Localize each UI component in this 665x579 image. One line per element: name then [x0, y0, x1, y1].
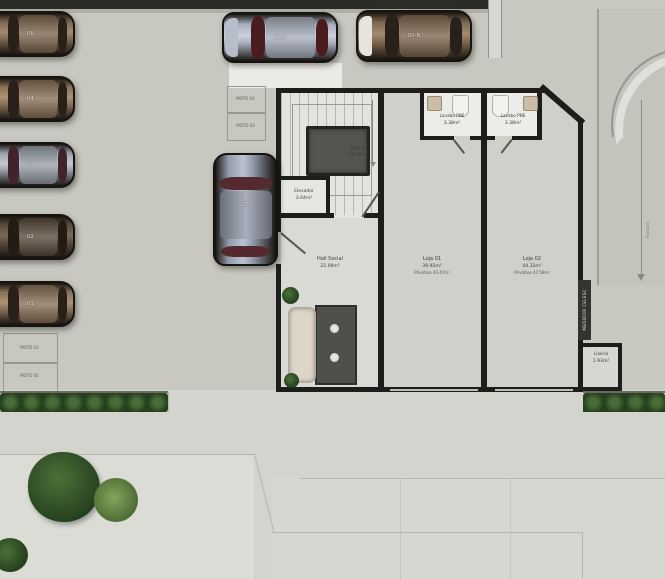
wall-stair-bottom-right — [364, 213, 378, 218]
wall-loja01-loja02 — [481, 88, 487, 392]
escada-area: 14.10m² — [348, 153, 367, 158]
car-spot-04: 04 — [0, 76, 75, 122]
lixeira-name: Lixeira — [594, 352, 608, 357]
hall-social-label: Hall Social 22.09m² — [304, 256, 356, 270]
elevador-name: Elevador — [294, 189, 314, 194]
sidewalk-joint — [168, 392, 169, 412]
car-number: 04 — [0, 96, 75, 102]
car-spot-07: 07 — [213, 153, 278, 266]
sidewalk-patch-right — [272, 478, 665, 579]
loja-02-label: Loja 02 44.32m² Privativa 47.56m² — [502, 256, 562, 277]
loja-01-area: 39.92m² — [422, 264, 441, 269]
sidewalk-joint — [510, 478, 511, 579]
wall-lavabo1-bottom — [420, 136, 454, 140]
escada-label: Escada 14.10m² — [338, 146, 378, 159]
escada-name: Escada — [350, 146, 366, 151]
wall-top — [276, 88, 548, 93]
wall-lixeira-right — [618, 343, 622, 392]
car-number: 03 — [0, 162, 75, 168]
sink-icon — [523, 96, 538, 111]
car-windshield — [219, 177, 272, 191]
loja-01-label: Loja 01 39.92m² Privativa 43.47m² — [402, 256, 462, 277]
wall-elevador-top — [276, 176, 330, 180]
elevador-area: 3.64m² — [296, 196, 313, 201]
parking-strip-05a — [229, 63, 342, 88]
wall-right — [578, 118, 583, 392]
car-number: 05-A — [222, 35, 338, 41]
moto-04-text: MOTO 04 — [236, 97, 255, 101]
sidewalk-joint — [400, 478, 401, 579]
loja-02-privativa: Privativa 47.56m² — [514, 270, 550, 275]
lavabo-1-area: 3.38m² — [444, 121, 461, 126]
tree — [28, 452, 100, 522]
palm-plant — [94, 478, 138, 522]
lavabo-1-label: Lavabo PNE 3.38m² — [426, 113, 478, 127]
ramp-label-text: Rampa — [646, 222, 651, 238]
hall-rug-table — [315, 305, 357, 385]
car-spot-05b: 05-B — [356, 10, 472, 62]
wall-elevador-right — [326, 176, 330, 218]
sink-icon — [427, 96, 442, 111]
hall-sofa — [288, 307, 316, 383]
loja-01-name: Loja 01 — [423, 256, 441, 262]
floor-plan: Rampa MOTO 02 MOTO 01 MOTO 04 MOTO 03 — [0, 0, 665, 579]
wall-lavabo1-stub — [470, 136, 481, 140]
storefront-glass-loja-02 — [495, 389, 573, 391]
car-spot-05a: 05-A — [222, 12, 338, 63]
car-number: 02 — [0, 234, 75, 240]
lavabo-2-area: 3.38m² — [505, 121, 522, 126]
loja-01-privativa: Privativa 43.47m² — [414, 270, 450, 275]
loja-02-name: Loja 02 — [523, 256, 541, 262]
car-spot-01: 01 — [0, 281, 75, 327]
moto-01-label: MOTO 01 — [3, 362, 56, 390]
ramp-arrow — [637, 274, 645, 281]
medidor-celesc-label: MEDIDOR CELESC — [582, 289, 587, 331]
moto-02-text: MOTO 02 — [20, 346, 39, 350]
car-rear-window — [221, 246, 269, 257]
top-boundary-wall — [0, 0, 488, 9]
ramp-centerline — [641, 100, 642, 276]
sidewalk-joint — [582, 532, 583, 579]
car-roof — [220, 191, 272, 238]
sidewalk-joint — [300, 478, 665, 479]
sidewalk-joint — [272, 532, 582, 533]
planter-shrubs-right — [583, 393, 665, 415]
sidewalk-joint — [0, 454, 255, 455]
hall-social-area: 22.09m² — [320, 264, 339, 269]
hall-social-name: Hall Social — [317, 256, 343, 262]
hall-plant — [284, 373, 299, 388]
car-spot-02: 02 — [0, 214, 75, 260]
car-number: 07 — [213, 202, 278, 208]
car-spot-06: 06 — [0, 11, 75, 57]
wall-hall-loja01 — [378, 88, 384, 392]
table-plate — [330, 324, 339, 333]
medidor-celesc-closet: MEDIDOR CELESC — [578, 280, 591, 340]
lavabo-1-name: Lavabo PNE — [440, 113, 465, 118]
wall-lavabo2-bottom — [512, 136, 537, 140]
wall-lixeira-top — [578, 343, 622, 347]
car-number: 01 — [0, 301, 75, 307]
elevador-label: Elevador 3.64m² — [283, 189, 325, 202]
lavabo-2-name: Lavabo PNE — [501, 113, 526, 118]
moto-04-label: MOTO 04 — [227, 86, 264, 112]
ramp-curb-band — [488, 0, 502, 58]
hall-plant — [282, 287, 299, 304]
car-number: 06 — [0, 31, 75, 37]
storefront-glass-loja-01 — [390, 389, 478, 391]
stair-dimension-arrow — [370, 162, 376, 167]
wall-lavabo1-left — [420, 93, 424, 140]
lixeira-label: Lixeira 1.93m² — [583, 352, 619, 365]
wall-lavabo2-stub — [487, 136, 495, 140]
ramp-label: Rampa — [646, 205, 656, 255]
wall-left-lower — [276, 264, 281, 392]
loja-02-area: 44.32m² — [522, 264, 541, 269]
car-number: 05-B — [356, 33, 472, 39]
moto-01-text: MOTO 01 — [20, 374, 39, 378]
table-plate — [330, 353, 339, 362]
moto-03-text: MOTO 03 — [236, 124, 255, 128]
lavabo-2-label: Lavabo PNE 3.38m² — [490, 113, 536, 127]
lixeira-area: 1.93m² — [593, 359, 610, 364]
moto-03-label: MOTO 03 — [227, 112, 264, 139]
planter-shrubs-left — [0, 393, 168, 412]
car-spot-03: 03 — [0, 142, 75, 188]
moto-02-label: MOTO 02 — [3, 333, 56, 362]
